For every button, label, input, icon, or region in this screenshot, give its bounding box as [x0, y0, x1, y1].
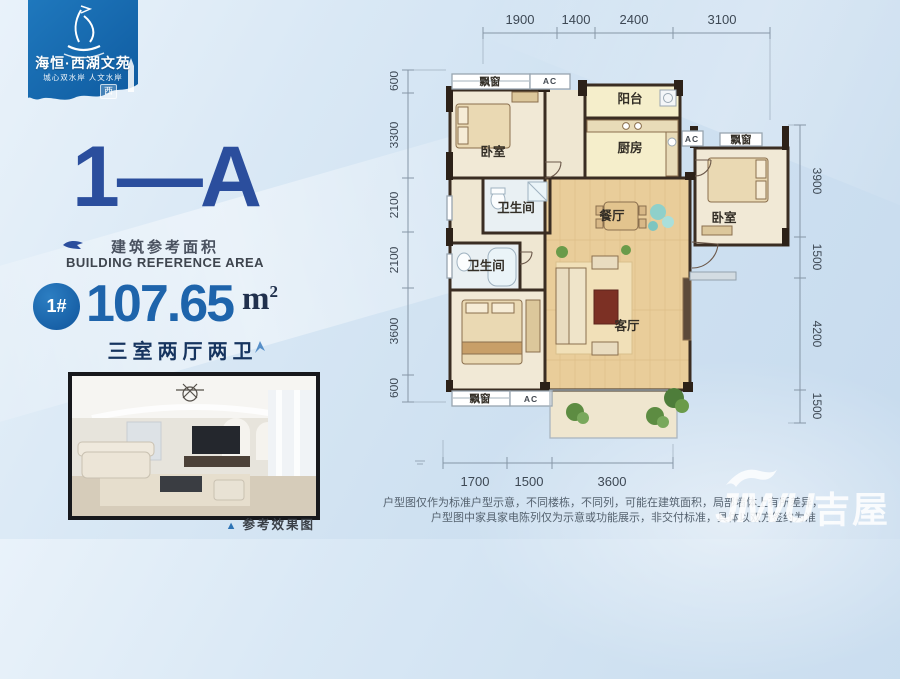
watermark-latin: JIWU — [715, 484, 812, 532]
dim-right-1: 3900 — [810, 168, 824, 195]
reference-photo — [68, 372, 320, 520]
area-unit-m: m — [242, 281, 270, 317]
label-bedroom-r: 卧室 — [711, 210, 737, 225]
north-mark — [415, 461, 425, 464]
watermark-cn: 吉屋 — [814, 481, 890, 533]
dim-left-4: 2100 — [390, 246, 401, 273]
label-ac-top: AC — [543, 76, 557, 86]
label-kitchen: 厨房 — [617, 140, 642, 155]
area-unit: m2 — [242, 281, 278, 318]
label-living: 客厅 — [613, 318, 640, 333]
label-ac-bl: AC — [524, 394, 538, 404]
dim-right-3: 4200 — [810, 321, 824, 348]
watermark-arrow-icon — [252, 341, 268, 355]
dim-left-2: 3300 — [390, 121, 401, 148]
dim-left-6: 600 — [390, 378, 401, 398]
photo-caption: ▲参考效果图 — [150, 514, 315, 533]
label-dining: 餐厅 — [598, 208, 625, 223]
photo-caption-text: 参考效果图 — [242, 518, 315, 532]
brand-name: 海恒·西湖文苑 — [24, 53, 142, 73]
floor-plan: 卧室 阳台 厨房 卫生间 卫生间 餐厅 客厅 卧室 飘窗 飘窗 飘窗 AC AC… — [390, 0, 900, 539]
label-bath-1: 卫生间 — [497, 200, 535, 215]
brand-flag: 海恒·西湖文苑 城心双水岸 人文水岸 西 — [24, 0, 142, 114]
label-bath-2: 卫生间 — [467, 258, 505, 273]
site-watermark: JIWU 吉屋 — [715, 481, 890, 533]
triangle-marker-icon: ▲ — [226, 520, 239, 532]
photo-scene — [72, 376, 316, 516]
area-label-en: BUILDING REFERENCE AREA — [40, 255, 290, 270]
dim-bottom-3: 3600 — [598, 474, 627, 489]
dim-top-2: 1400 — [562, 12, 591, 27]
area-value: 107.65 — [86, 274, 233, 334]
building-badge: 1# — [33, 283, 80, 330]
label-bay-r: 飘窗 — [731, 133, 752, 146]
label-balcony: 阳台 — [617, 91, 642, 106]
label-ac-r: AC — [685, 134, 699, 144]
dim-top-3: 2400 — [620, 12, 649, 27]
label-bedroom-tl: 卧室 — [480, 144, 506, 159]
layout-text: 三室两厅两卫 — [55, 335, 310, 364]
area-unit-exp: 2 — [270, 282, 279, 301]
dim-left-5: 3600 — [390, 317, 401, 344]
dim-left-3: 2100 — [390, 191, 401, 218]
area-label-cn: 建筑参考面积 — [60, 236, 270, 257]
dim-right-2: 1500 — [810, 244, 824, 271]
dim-top-4: 3100 — [708, 12, 737, 27]
unit-code: 1—A — [72, 134, 292, 220]
brand-tagline: 城心双水岸 人文水岸 — [24, 72, 142, 83]
dim-top-1: 1900 — [506, 12, 535, 27]
label-bay-tl: 飘窗 — [480, 75, 501, 88]
dim-right-4: 1500 — [810, 393, 824, 420]
floorplan-page: { "brand": { "name": "海恒·西湖文苑", "tagline… — [0, 0, 900, 539]
entry-wall-stub — [690, 272, 736, 280]
dim-bottom-2: 1500 — [515, 474, 544, 489]
label-bay-bl: 飘窗 — [470, 392, 491, 405]
dim-bottom-1: 1700 — [461, 474, 490, 489]
brand-seal: 西 — [100, 84, 117, 99]
dim-left-1: 600 — [390, 71, 401, 91]
